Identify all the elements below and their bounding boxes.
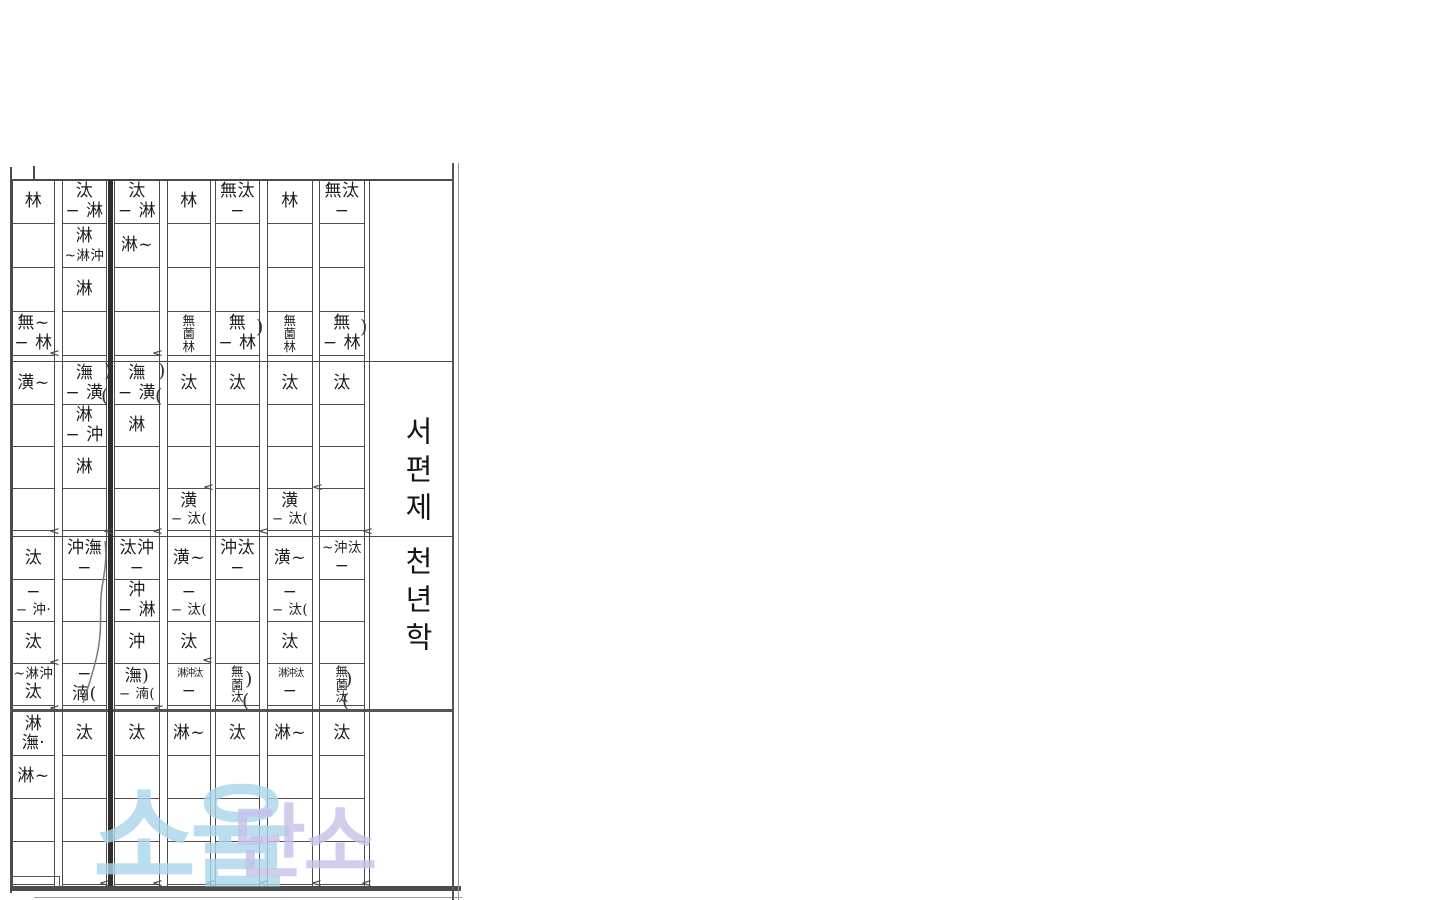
note-text: 汰 xyxy=(281,633,299,652)
note-text: − 林 xyxy=(218,334,256,353)
note-text: 汰 xyxy=(25,549,43,568)
note-text: 淋 xyxy=(76,458,94,477)
note-text: 沖 xyxy=(128,633,146,652)
jeonggan-cell: 汰 xyxy=(216,363,259,405)
yeoneum-chevron-mark: < xyxy=(203,484,214,492)
note-text: 薗 xyxy=(182,328,195,340)
note-text: ~淋沖 xyxy=(14,667,54,682)
top-left-stub-line xyxy=(33,166,35,181)
jeonggan-cell: 無薗林 xyxy=(168,312,210,356)
jeonggan-cell xyxy=(216,405,259,447)
yeoneum-chevron-mark: < xyxy=(152,528,163,536)
note-text: 汰 xyxy=(281,374,299,393)
note-text: 無~ xyxy=(17,314,49,333)
jeonggan-cell xyxy=(268,447,312,489)
jeonggan-cell: 潢~ xyxy=(13,363,54,405)
note-text: 林 xyxy=(180,192,198,211)
note-text: 汰 xyxy=(76,724,94,743)
note-text: 無汰 xyxy=(220,182,255,201)
jeonggan-cell: 汰 xyxy=(320,713,364,756)
note-text: 潕· xyxy=(22,734,45,753)
note-text: 潕) xyxy=(125,667,150,686)
yeoneum-chevron-mark: < xyxy=(258,528,269,536)
note-text: 潢~ xyxy=(17,374,49,393)
sigimsae-paren-mark: ( xyxy=(155,385,162,407)
note-text: 淋~ xyxy=(173,724,205,743)
jeonggan-cell xyxy=(13,447,54,489)
jeonggan-cell: 無~− 林 xyxy=(13,312,54,356)
jeonggan-cell: 沖− 淋 xyxy=(115,580,159,622)
note-text: 沖 xyxy=(128,581,146,600)
note-text: − 林 xyxy=(14,334,52,353)
jeonggan-cell: 無− 林 xyxy=(216,312,259,356)
note-text: 無 xyxy=(229,314,247,333)
note-text: 淋~ xyxy=(121,236,153,255)
note-text: 沖汰 xyxy=(220,539,255,558)
jeonggan-cell: 沖 xyxy=(115,622,159,664)
yeoneum-chevron-mark: < xyxy=(153,705,164,713)
note-text: ~沖汰 xyxy=(322,541,362,556)
note-text: 汰沖 xyxy=(120,539,155,558)
title-column xyxy=(369,180,452,886)
jeonggan-cell: 潢− 汰( xyxy=(168,489,210,531)
note-text: 潢 xyxy=(180,492,198,511)
note-text: 汰 xyxy=(128,182,146,201)
note-text: 林 xyxy=(25,192,43,211)
note-text: − 沖· xyxy=(16,603,51,618)
yeoneum-chevron-mark: < xyxy=(152,350,163,358)
jeonggan-cell: 無薗汰 xyxy=(216,664,259,706)
jeonggan-cell: 汰 xyxy=(168,363,210,405)
note-text: ~淋沖 xyxy=(65,249,105,264)
jeonggan-cell xyxy=(320,622,364,664)
note-text: 林 xyxy=(281,192,299,211)
jeonggan-cell: 汰 xyxy=(320,363,364,405)
jeonggan-cell xyxy=(320,224,364,268)
jeonggan-cell xyxy=(168,405,210,447)
jeonggan-cell xyxy=(13,405,54,447)
note-text: 汰 xyxy=(180,633,198,652)
note-text: − 汰( xyxy=(272,512,308,527)
jeonggan-cell xyxy=(268,268,312,312)
yeoneum-chevron-mark: < xyxy=(202,657,213,665)
jeonggan-cell: 汰沖− xyxy=(115,538,159,580)
jeonggan-cell: 潢~ xyxy=(168,538,210,580)
note-text: 無 xyxy=(283,315,296,327)
jeonggan-cell xyxy=(320,489,364,531)
yeoneum-chevron-mark: < xyxy=(312,484,323,492)
jeonggan-cell: 潕− 潢 xyxy=(115,363,159,405)
sigimsae-paren-mark: ) xyxy=(256,316,263,338)
sigimsae-paren-mark: ( xyxy=(342,690,349,712)
note-text: 汰 xyxy=(25,683,43,702)
jeonggan-cell: ~沖汰− xyxy=(320,538,364,580)
note-text: 淋 xyxy=(128,416,146,435)
jeonggan-cell: 林 xyxy=(13,180,54,224)
note-text: 淋沖汰 xyxy=(278,668,303,680)
note-text: 薗 xyxy=(283,328,296,340)
note-text: − 潢 xyxy=(118,384,156,403)
right-border-thin xyxy=(458,163,459,900)
note-text: − xyxy=(283,682,298,701)
note-text: 淋~ xyxy=(274,724,306,743)
note-text: − xyxy=(182,583,197,602)
note-text: 淋~ xyxy=(17,767,49,786)
note-text: − 沖 xyxy=(65,426,103,445)
jeonggan-cell: 淋~ xyxy=(115,224,159,268)
note-text: 林 xyxy=(283,341,296,353)
jeonggan-cell xyxy=(320,447,364,489)
jeonggan-cell: 潢~ xyxy=(268,538,312,580)
note-text: 汰 xyxy=(76,182,94,201)
jeonggan-cell xyxy=(216,447,259,489)
jeonggan-cell xyxy=(320,405,364,447)
jeonggan-cell: 淋 xyxy=(63,447,106,489)
note-text: 淋沖汰 xyxy=(177,668,202,680)
jeonggan-cell: 林 xyxy=(168,180,210,224)
sigimsae-paren-mark: ) xyxy=(158,360,165,382)
note-text: 汰 xyxy=(180,374,198,393)
jeonggan-cell: 沖汰− xyxy=(216,538,259,580)
jeonggan-cell: −− 汰( xyxy=(168,580,210,622)
sigimsae-paren-mark: ( xyxy=(101,385,108,407)
yeoneum-chevron-mark: < xyxy=(49,659,60,667)
note-text: 無 xyxy=(182,315,195,327)
yeoneum-chevron-mark: < xyxy=(49,705,60,713)
watermark-right: 단소 xyxy=(232,778,375,894)
jeonggan-cell: 淋 xyxy=(63,268,106,312)
jeonggan-cell: 淋~淋沖 xyxy=(63,224,106,268)
note-text: − 湳( xyxy=(119,687,155,702)
jeonggan-cell: 潕− 潢 xyxy=(63,363,106,405)
note-text: − 林 xyxy=(323,334,361,353)
note-text: − xyxy=(335,557,350,576)
jeonggan-cell xyxy=(13,799,54,842)
jeonggan-cell xyxy=(13,842,54,885)
note-text: − 汰( xyxy=(272,603,308,618)
note-text: 潕 xyxy=(128,364,146,383)
jeonggan-cell xyxy=(13,224,54,268)
jeonggan-cell: 淋沖汰− xyxy=(268,664,312,706)
note-text: 潢~ xyxy=(173,549,205,568)
jeonggan-cell xyxy=(63,489,106,531)
note-text: − 汰( xyxy=(171,512,207,527)
jeonggan-cell: 淋− 沖 xyxy=(63,405,106,447)
jeonggan-cell xyxy=(268,405,312,447)
jeonggan-cell xyxy=(168,268,210,312)
sigimsae-paren-mark: ) xyxy=(360,316,367,338)
jeonggan-cell xyxy=(115,447,159,489)
jeonggan-cell: 汰− 淋 xyxy=(115,180,159,224)
note-text: 汰 xyxy=(229,724,247,743)
jeonggan-cell xyxy=(320,268,364,312)
note-text: 汰 xyxy=(333,374,351,393)
note-text: 淋 xyxy=(25,715,43,734)
jeonggan-cell: 汰 xyxy=(268,622,312,664)
jeonggan-cell xyxy=(268,224,312,268)
jeonggan-cell: 無− 林 xyxy=(320,312,364,356)
note-text: 淋 xyxy=(76,406,94,425)
jeonggan-cell xyxy=(168,224,210,268)
note-text: − xyxy=(335,202,350,221)
jeonggan-cell: 林 xyxy=(268,180,312,224)
jeonggan-cell: 淋潕· xyxy=(13,713,54,756)
sigimsae-paren-mark: ) xyxy=(245,668,252,690)
jeonggan-cell xyxy=(216,622,259,664)
jeonggan-cell: 汰 xyxy=(13,622,54,664)
jeonggan-cell: 無汰− xyxy=(320,180,364,224)
jeonggan-cell xyxy=(216,489,259,531)
jeonggan-cell xyxy=(13,268,54,312)
note-text: − 汰( xyxy=(171,603,207,618)
note-text: − xyxy=(230,202,245,221)
sigimsae-paren-mark: ( xyxy=(242,690,249,712)
note-text: − 淋 xyxy=(118,601,156,620)
song-title-part2: 천년학 xyxy=(396,546,438,660)
jeonggan-cell xyxy=(63,312,106,356)
note-text: − 潢 xyxy=(65,384,103,403)
jeonggan-cell: −− 沖· xyxy=(13,580,54,622)
jeonggan-cell: 淋 xyxy=(115,405,159,447)
note-text: − xyxy=(130,559,145,578)
jeonggan-cell: 淋~ xyxy=(13,756,54,799)
yeoneum-chevron-mark: < xyxy=(49,350,60,358)
jeonggan-cell: 汰 xyxy=(13,538,54,580)
note-text: 無汰 xyxy=(325,182,360,201)
jeonggan-cell xyxy=(320,580,364,622)
jeonggan-cell: 淋沖汰− xyxy=(168,664,210,706)
note-text: − xyxy=(182,682,197,701)
jeonggan-cell: ~淋沖汰 xyxy=(13,664,54,706)
note-text: − xyxy=(26,583,41,602)
note-text: 無 xyxy=(231,666,244,678)
sigimsae-paren-mark: ) xyxy=(104,360,111,382)
jeonggan-cell: 無薗林 xyxy=(268,312,312,356)
jeonggan-cell: 汰 xyxy=(268,363,312,405)
note-text: 無 xyxy=(333,314,351,333)
score-sheet: 林無~− 林潢~汰−− 沖·汰~淋沖汰淋潕·淋~汰− 淋淋~淋沖淋潕− 潢淋− … xyxy=(0,0,1440,900)
note-text: − 淋 xyxy=(118,202,156,221)
jeonggan-cell xyxy=(216,580,259,622)
song-title-part1: 서편제 xyxy=(396,416,438,530)
jeonggan-cell: 汰− 淋 xyxy=(63,180,106,224)
yeoneum-chevron-mark: < xyxy=(49,528,60,536)
jeonggan-cell xyxy=(216,268,259,312)
sigimsae-paren-mark: ) xyxy=(345,668,352,690)
jeonggan-cell xyxy=(115,268,159,312)
note-text: 潢 xyxy=(281,492,299,511)
note-text: 潢~ xyxy=(274,549,306,568)
slur-line xyxy=(75,535,120,710)
jeonggan-cell: 潢− 汰( xyxy=(268,489,312,531)
note-text: 汰 xyxy=(333,724,351,743)
note-text: − xyxy=(283,583,298,602)
note-text: 淋 xyxy=(76,227,94,246)
note-text: 林 xyxy=(182,341,195,353)
jeonggan-cell: 無汰− xyxy=(216,180,259,224)
jeonggan-cell xyxy=(13,489,54,531)
note-text: 汰 xyxy=(229,374,247,393)
note-text: 潕 xyxy=(76,364,94,383)
note-text: − xyxy=(230,559,245,578)
note-text: − 淋 xyxy=(65,202,103,221)
jeonggan-cell: 潕)− 湳( xyxy=(115,664,159,706)
note-text: 汰 xyxy=(128,724,146,743)
note-text: 汰 xyxy=(25,633,43,652)
jeonggan-cell: −− 汰( xyxy=(268,580,312,622)
jeonggan-cell xyxy=(216,224,259,268)
note-text: 淋 xyxy=(76,280,94,299)
